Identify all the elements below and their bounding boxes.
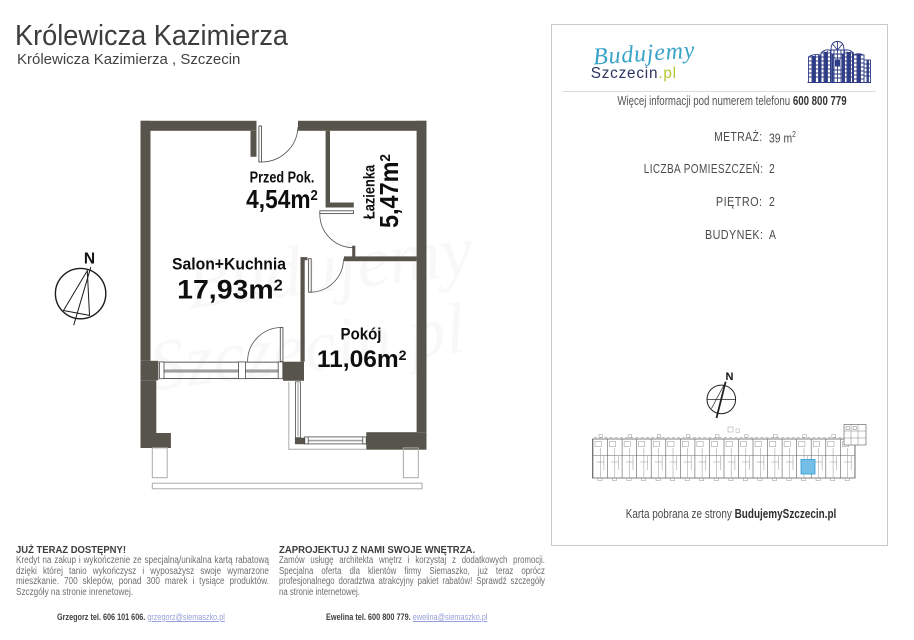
svg-text:N: N bbox=[84, 251, 95, 268]
